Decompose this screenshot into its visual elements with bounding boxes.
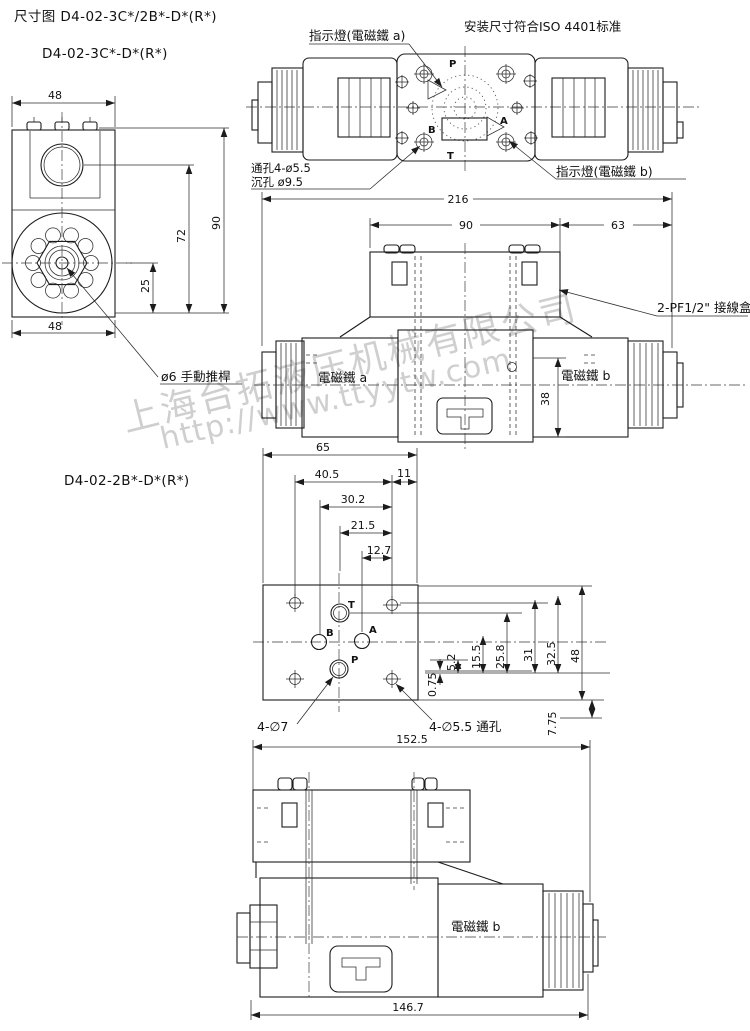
plate-port-t: T bbox=[348, 600, 355, 611]
through-hole-note: 通孔4-ø5.5 bbox=[251, 161, 311, 175]
port-p-label: P bbox=[449, 59, 456, 70]
variant-a-label: D4-02-3C*-D*(R*) bbox=[42, 46, 168, 62]
dim-top-width: 48 bbox=[48, 89, 62, 102]
port-b-label: B bbox=[428, 125, 436, 136]
dim-65: 65 bbox=[316, 441, 330, 454]
dim-48: 48 bbox=[569, 649, 582, 663]
dim-11: 11 bbox=[397, 467, 411, 480]
page-title: 尺寸图 D4-02-3C*/2B*-D*(R*) bbox=[14, 9, 217, 25]
dim-152-5: 152.5 bbox=[396, 733, 428, 746]
dim-40-5: 40.5 bbox=[315, 468, 340, 481]
paper-background bbox=[0, 0, 750, 1031]
dim-0-75: 0.75 bbox=[426, 673, 439, 698]
indicator-a-label: 指示燈(電磁鐵 a) bbox=[309, 28, 405, 43]
plate-port-a: A bbox=[369, 625, 377, 636]
plate-port-p: P bbox=[351, 655, 358, 666]
iso-note: 安装尺寸符合ISO 4401标准 bbox=[464, 19, 621, 34]
dim-total-216: 216 bbox=[448, 193, 469, 206]
drawing-sheet: 上海台拓液压机械有限公司 http://www.ttyytw.com 尺寸图 D… bbox=[0, 0, 750, 1031]
dim-30-2: 30.2 bbox=[341, 493, 366, 506]
dim-port-height-72: 72 bbox=[175, 229, 188, 243]
port-a-label: A bbox=[500, 116, 508, 127]
plate-port-b: B bbox=[326, 628, 334, 639]
dim-height-38: 38 bbox=[539, 392, 552, 406]
dim-15-5: 15.5 bbox=[470, 645, 483, 670]
indicator-b-label: 指示燈(電磁鐵 b) bbox=[556, 164, 653, 179]
dim-12-7: 12.7 bbox=[367, 544, 392, 557]
junction-box-label: 2-PF1/2" 接線盒 bbox=[657, 300, 750, 315]
dim-7-75: 7.75 bbox=[546, 712, 559, 737]
callout-port-holes: 4-∅7 bbox=[257, 719, 288, 734]
solenoid-b-label: 電磁鐵 b bbox=[561, 368, 610, 383]
dim-right-63: 63 bbox=[611, 219, 625, 232]
solenoid-a-label: 電磁鐵 a bbox=[318, 370, 367, 385]
dim-5-2: 5.2 bbox=[445, 654, 458, 672]
dim-bottom-width: 48 bbox=[48, 320, 62, 333]
dim-32-5: 32.5 bbox=[545, 642, 558, 667]
dim-left-90: 90 bbox=[459, 219, 473, 232]
counterbore-note: 沉孔 ø9.5 bbox=[251, 175, 303, 189]
dim-25-8: 25.8 bbox=[494, 645, 507, 670]
dim-height-90: 90 bbox=[210, 216, 223, 230]
callout-bolt-holes: 4-∅5.5 通孔 bbox=[429, 719, 502, 734]
dim-31: 31 bbox=[522, 648, 535, 662]
variant-b-label: D4-02-2B*-D*(R*) bbox=[64, 473, 190, 489]
dim-21-5: 21.5 bbox=[351, 519, 376, 532]
dim-center-height-25: 25 bbox=[139, 279, 152, 293]
port-t-label: T bbox=[447, 151, 454, 162]
dim-146-7: 146.7 bbox=[392, 1001, 424, 1014]
manual-rod-label: ø6 手動推桿 bbox=[161, 369, 231, 384]
solenoid-b-label-2b: 電磁鐵 b bbox=[451, 919, 500, 934]
